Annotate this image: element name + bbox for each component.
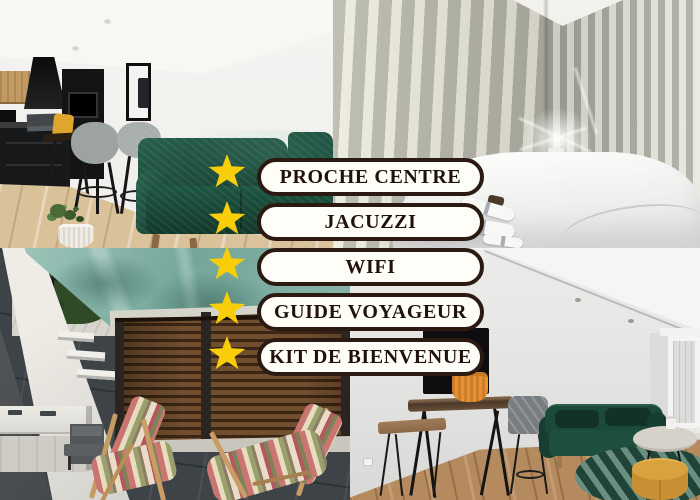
window — [668, 336, 700, 428]
stool-leg — [120, 156, 131, 214]
power-outlet — [363, 458, 373, 466]
step-stool-top — [72, 426, 102, 436]
badge-pill-wifi: WIFI — [257, 248, 484, 286]
ceiling-spotlight — [575, 298, 581, 302]
sofa-leg — [189, 238, 197, 248]
wood-cabinet — [0, 71, 30, 104]
stool-footring — [77, 186, 117, 198]
ceiling-spotlight — [104, 19, 111, 24]
bar-stool-seat — [71, 122, 119, 164]
badge-pill-jacuzzi: JACUZZI — [257, 203, 484, 241]
property-photo-collage: PROCHE CENTRE JACUZZI WIFI GUIDE VOYAGEU… — [0, 0, 700, 500]
range-hood — [24, 57, 66, 109]
wood-bench-stool — [378, 418, 447, 435]
chair-footring — [516, 470, 544, 479]
badge-pill-guide-voyageur: GUIDE VOYAGEUR — [257, 293, 484, 331]
plant-foliage — [50, 204, 66, 218]
item-on-cover — [8, 410, 22, 415]
sofa-leg — [557, 456, 562, 468]
ceiling-spotlight — [628, 319, 634, 323]
ceiling-spotlight — [72, 46, 79, 51]
fence-post — [201, 312, 211, 440]
towel-band — [484, 202, 491, 216]
yellow-pouf-top — [632, 458, 688, 480]
badge-pill-kit-de-bienvenue: KIT DE BIENVENUE — [257, 338, 484, 376]
sofa-cushion — [605, 408, 651, 426]
poster-figure — [138, 78, 149, 108]
microwave — [68, 92, 98, 118]
towel-band — [500, 236, 505, 246]
window-lintel — [660, 328, 700, 336]
item-on-cover — [40, 411, 56, 416]
wall-poster — [126, 63, 151, 121]
badge-pill-proche-centre: PROCHE CENTRE — [257, 158, 484, 196]
sofa-cushion — [555, 410, 599, 428]
round-coffee-table — [633, 426, 697, 452]
step-stool-leg — [68, 456, 71, 470]
plant-pot — [58, 224, 94, 248]
orange-planter — [452, 372, 488, 402]
cup — [666, 416, 676, 429]
